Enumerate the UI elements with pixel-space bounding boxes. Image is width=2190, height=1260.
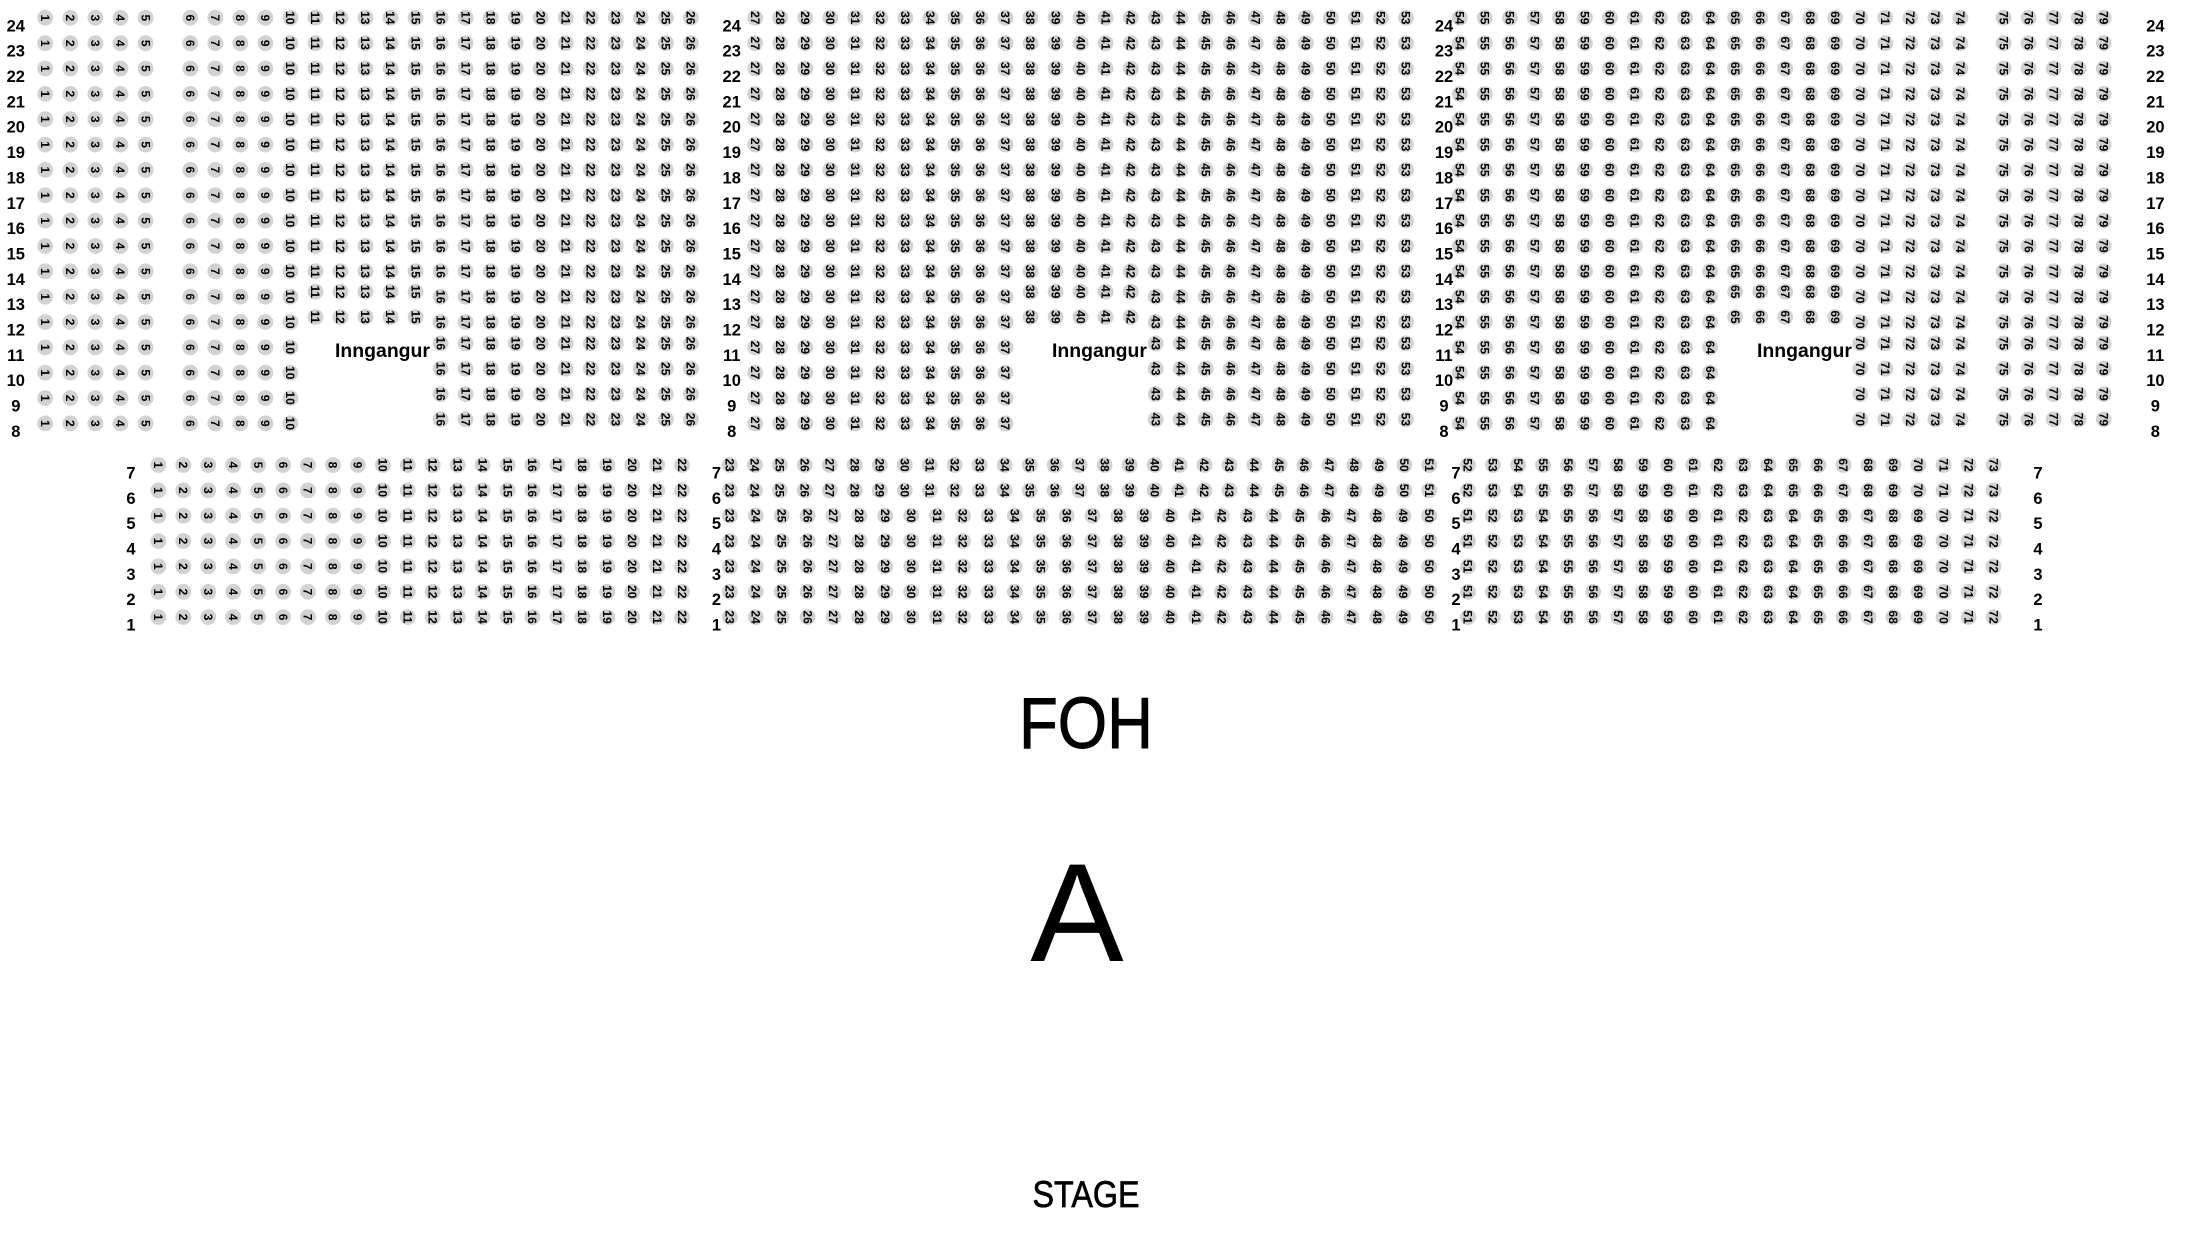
svg-text:72: 72 — [1903, 138, 1917, 152]
svg-text:39: 39 — [1048, 310, 1062, 324]
svg-text:5: 5 — [251, 487, 265, 494]
svg-text:18: 18 — [483, 113, 497, 127]
svg-text:20: 20 — [533, 37, 547, 51]
svg-text:9: 9 — [727, 398, 736, 416]
svg-text:53: 53 — [1399, 413, 1413, 427]
svg-text:60: 60 — [1603, 239, 1617, 253]
svg-text:27: 27 — [826, 560, 840, 574]
svg-text:41: 41 — [1172, 484, 1186, 498]
svg-text:3: 3 — [88, 167, 102, 174]
svg-text:38: 38 — [1111, 610, 1125, 624]
svg-text:24: 24 — [749, 585, 763, 599]
svg-text:55: 55 — [1478, 341, 1492, 355]
svg-text:74: 74 — [1953, 163, 1967, 177]
svg-text:75: 75 — [1996, 113, 2010, 127]
svg-text:71: 71 — [1961, 560, 1975, 574]
svg-text:41: 41 — [1098, 11, 1112, 25]
svg-text:3: 3 — [88, 293, 102, 300]
svg-text:66: 66 — [1811, 458, 1825, 472]
svg-text:40: 40 — [1073, 37, 1087, 51]
svg-text:33: 33 — [898, 62, 912, 76]
svg-text:5: 5 — [138, 40, 152, 47]
svg-text:45: 45 — [1198, 362, 1212, 376]
svg-text:79: 79 — [2096, 265, 2110, 279]
svg-text:42: 42 — [1197, 458, 1211, 472]
svg-text:51: 51 — [1349, 113, 1363, 127]
svg-text:66: 66 — [1811, 484, 1825, 498]
svg-text:59: 59 — [1636, 484, 1650, 498]
svg-text:56: 56 — [1503, 189, 1517, 203]
svg-text:30: 30 — [823, 87, 837, 101]
svg-text:3: 3 — [88, 420, 102, 427]
svg-text:19: 19 — [600, 585, 614, 599]
svg-text:71: 71 — [1878, 265, 1892, 279]
svg-text:69: 69 — [1911, 610, 1925, 624]
svg-text:60: 60 — [1603, 37, 1617, 51]
svg-text:63: 63 — [1678, 239, 1692, 253]
svg-text:75: 75 — [1996, 87, 2010, 101]
svg-text:74: 74 — [1953, 37, 1967, 51]
svg-text:19: 19 — [508, 37, 522, 51]
svg-text:7: 7 — [208, 192, 222, 199]
svg-text:6: 6 — [183, 319, 197, 326]
svg-text:63: 63 — [1678, 214, 1692, 228]
svg-text:3: 3 — [88, 116, 102, 123]
svg-text:35: 35 — [948, 189, 962, 203]
svg-text:48: 48 — [1370, 534, 1384, 548]
svg-text:26: 26 — [684, 189, 698, 203]
svg-text:36: 36 — [973, 214, 987, 228]
svg-text:18: 18 — [7, 169, 25, 187]
svg-text:75: 75 — [1996, 239, 2010, 253]
svg-text:27: 27 — [823, 484, 837, 498]
svg-text:51: 51 — [1349, 387, 1363, 401]
svg-text:65: 65 — [1811, 585, 1825, 599]
svg-text:29: 29 — [878, 560, 892, 574]
svg-text:73: 73 — [1928, 37, 1942, 51]
svg-text:15: 15 — [500, 484, 514, 498]
svg-text:31: 31 — [930, 610, 944, 624]
svg-text:48: 48 — [1347, 458, 1361, 472]
svg-text:18: 18 — [483, 138, 497, 152]
svg-text:25: 25 — [774, 585, 788, 599]
svg-text:51: 51 — [1349, 413, 1363, 427]
svg-text:10: 10 — [283, 189, 297, 203]
svg-text:57: 57 — [1528, 214, 1542, 228]
svg-text:4: 4 — [113, 319, 127, 326]
svg-text:57: 57 — [1611, 560, 1625, 574]
svg-text:13: 13 — [358, 138, 372, 152]
svg-text:75: 75 — [1996, 265, 2010, 279]
svg-text:46: 46 — [1297, 484, 1311, 498]
svg-text:33: 33 — [898, 113, 912, 127]
svg-text:12: 12 — [425, 534, 439, 548]
svg-text:15: 15 — [723, 246, 741, 264]
svg-text:76: 76 — [2021, 413, 2035, 427]
svg-text:32: 32 — [873, 163, 887, 177]
svg-text:74: 74 — [1953, 113, 1967, 127]
svg-text:55: 55 — [1478, 62, 1492, 76]
svg-text:40: 40 — [1073, 113, 1087, 127]
svg-text:54: 54 — [1453, 290, 1467, 304]
svg-text:28: 28 — [773, 239, 787, 253]
svg-text:48: 48 — [1274, 239, 1288, 253]
svg-text:30: 30 — [823, 189, 837, 203]
svg-text:35: 35 — [948, 163, 962, 177]
svg-text:11: 11 — [308, 62, 322, 75]
svg-text:65: 65 — [1728, 285, 1742, 299]
svg-text:76: 76 — [2021, 290, 2035, 304]
svg-text:70: 70 — [1911, 458, 1925, 472]
svg-text:34: 34 — [923, 290, 937, 304]
svg-text:12: 12 — [723, 322, 741, 340]
svg-text:52: 52 — [1374, 315, 1388, 329]
svg-text:49: 49 — [1299, 189, 1313, 203]
svg-text:40: 40 — [1073, 189, 1087, 203]
svg-text:21: 21 — [559, 239, 573, 253]
svg-text:64: 64 — [1703, 189, 1717, 203]
svg-text:41: 41 — [1189, 534, 1203, 548]
svg-text:18: 18 — [1435, 169, 1453, 187]
svg-text:19: 19 — [600, 610, 614, 624]
svg-text:7: 7 — [208, 217, 222, 224]
svg-text:76: 76 — [2021, 189, 2035, 203]
svg-text:22: 22 — [7, 68, 25, 86]
svg-text:58: 58 — [1553, 113, 1567, 127]
svg-text:55: 55 — [1478, 189, 1492, 203]
svg-text:61: 61 — [1628, 239, 1642, 253]
svg-text:44: 44 — [1267, 585, 1281, 599]
svg-text:11: 11 — [308, 88, 322, 101]
svg-text:75: 75 — [1996, 37, 2010, 51]
svg-text:66: 66 — [1753, 265, 1767, 279]
svg-text:28: 28 — [852, 560, 866, 574]
svg-text:5: 5 — [138, 268, 152, 275]
svg-text:3: 3 — [201, 563, 215, 570]
svg-text:8: 8 — [326, 462, 340, 469]
svg-text:78: 78 — [2071, 163, 2085, 177]
svg-text:8: 8 — [233, 268, 247, 275]
svg-text:62: 62 — [1653, 87, 1667, 101]
svg-text:61: 61 — [1628, 417, 1642, 431]
svg-text:19: 19 — [7, 144, 25, 162]
svg-text:68: 68 — [1803, 239, 1817, 253]
svg-text:74: 74 — [1953, 265, 1967, 279]
svg-text:30: 30 — [823, 37, 837, 51]
svg-text:71: 71 — [1878, 387, 1892, 401]
svg-text:50: 50 — [1422, 610, 1436, 624]
svg-text:47: 47 — [1344, 610, 1358, 624]
svg-text:58: 58 — [1611, 484, 1625, 498]
svg-text:19: 19 — [508, 138, 522, 152]
svg-text:40: 40 — [1163, 560, 1177, 574]
svg-text:4: 4 — [1451, 541, 1461, 559]
svg-text:24: 24 — [749, 534, 763, 548]
svg-text:31: 31 — [848, 417, 862, 431]
svg-text:21: 21 — [650, 560, 664, 574]
svg-text:16: 16 — [433, 315, 447, 329]
svg-text:27: 27 — [748, 113, 762, 127]
svg-text:65: 65 — [1728, 37, 1742, 51]
svg-text:27: 27 — [748, 417, 762, 431]
svg-text:42: 42 — [1123, 189, 1137, 203]
svg-text:1: 1 — [151, 462, 165, 469]
svg-text:18: 18 — [483, 163, 497, 177]
svg-text:9: 9 — [351, 512, 365, 519]
svg-text:17: 17 — [458, 62, 472, 76]
svg-text:66: 66 — [1836, 509, 1850, 523]
svg-text:32: 32 — [956, 509, 970, 523]
svg-text:28: 28 — [773, 138, 787, 152]
svg-text:67: 67 — [1778, 138, 1792, 152]
svg-text:61: 61 — [1628, 341, 1642, 355]
svg-text:23: 23 — [609, 189, 623, 203]
svg-text:31: 31 — [848, 290, 862, 304]
svg-text:18: 18 — [483, 37, 497, 51]
svg-text:35: 35 — [948, 265, 962, 279]
svg-text:23: 23 — [609, 214, 623, 228]
svg-text:44: 44 — [1267, 509, 1281, 523]
svg-text:68: 68 — [1803, 37, 1817, 51]
svg-text:78: 78 — [2071, 337, 2085, 351]
svg-text:31: 31 — [848, 11, 862, 25]
svg-text:16: 16 — [525, 484, 539, 498]
svg-text:60: 60 — [1603, 290, 1617, 304]
svg-text:70: 70 — [1936, 610, 1950, 624]
svg-text:7: 7 — [208, 319, 222, 326]
svg-text:33: 33 — [898, 290, 912, 304]
svg-text:65: 65 — [1811, 610, 1825, 624]
svg-text:28: 28 — [773, 391, 787, 405]
svg-text:12: 12 — [425, 484, 439, 498]
svg-text:70: 70 — [1853, 337, 1867, 351]
svg-text:30: 30 — [904, 534, 918, 548]
svg-text:69: 69 — [1886, 458, 1900, 472]
svg-text:13: 13 — [358, 113, 372, 127]
svg-text:45: 45 — [1198, 315, 1212, 329]
svg-text:53: 53 — [1399, 163, 1413, 177]
svg-text:25: 25 — [774, 509, 788, 523]
svg-text:35: 35 — [948, 214, 962, 228]
svg-text:60: 60 — [1603, 366, 1617, 380]
svg-text:76: 76 — [2021, 11, 2035, 25]
svg-text:54: 54 — [1453, 163, 1467, 177]
svg-text:28: 28 — [773, 417, 787, 431]
svg-text:22: 22 — [584, 37, 598, 51]
svg-text:44: 44 — [1173, 189, 1187, 203]
svg-text:21: 21 — [559, 87, 573, 101]
svg-text:33: 33 — [898, 417, 912, 431]
svg-text:11: 11 — [2147, 347, 2164, 365]
svg-text:9: 9 — [11, 398, 20, 416]
svg-text:32: 32 — [873, 37, 887, 51]
svg-text:61: 61 — [1711, 560, 1725, 574]
svg-text:9: 9 — [351, 538, 365, 545]
svg-text:13: 13 — [358, 310, 372, 324]
svg-text:24: 24 — [749, 509, 763, 523]
svg-text:35: 35 — [948, 138, 962, 152]
svg-text:55: 55 — [1478, 391, 1492, 405]
svg-text:4: 4 — [113, 344, 127, 351]
svg-text:49: 49 — [1396, 534, 1410, 548]
svg-text:68: 68 — [1861, 458, 1875, 472]
svg-text:38: 38 — [1023, 214, 1037, 228]
svg-text:67: 67 — [1778, 285, 1792, 299]
svg-text:69: 69 — [1828, 285, 1842, 299]
svg-text:73: 73 — [1928, 337, 1942, 351]
svg-text:38: 38 — [1111, 534, 1125, 548]
svg-text:24: 24 — [634, 214, 648, 228]
svg-text:20: 20 — [625, 610, 639, 624]
svg-text:26: 26 — [684, 362, 698, 376]
svg-text:64: 64 — [1703, 87, 1717, 101]
svg-text:58: 58 — [1553, 265, 1567, 279]
svg-text:43: 43 — [1241, 509, 1255, 523]
svg-text:42: 42 — [1123, 87, 1137, 101]
svg-text:18: 18 — [2146, 169, 2164, 187]
svg-text:9: 9 — [258, 344, 272, 351]
svg-text:32: 32 — [956, 560, 970, 574]
svg-text:14: 14 — [383, 214, 397, 228]
svg-text:35: 35 — [948, 87, 962, 101]
svg-text:13: 13 — [358, 239, 372, 253]
svg-text:39: 39 — [1048, 285, 1062, 299]
svg-text:20: 20 — [533, 239, 547, 253]
svg-text:35: 35 — [948, 391, 962, 405]
svg-text:32: 32 — [873, 341, 887, 355]
svg-text:16: 16 — [1435, 220, 1453, 238]
svg-text:59: 59 — [1578, 366, 1592, 380]
svg-text:31: 31 — [848, 239, 862, 253]
svg-text:60: 60 — [1603, 113, 1617, 127]
svg-text:36: 36 — [973, 366, 987, 380]
svg-text:39: 39 — [1048, 189, 1062, 203]
svg-text:59: 59 — [1661, 509, 1675, 523]
svg-text:12: 12 — [333, 163, 347, 177]
svg-text:14: 14 — [475, 560, 489, 574]
svg-text:53: 53 — [1486, 484, 1500, 498]
svg-text:6: 6 — [183, 369, 197, 376]
svg-text:21: 21 — [559, 265, 573, 279]
svg-text:64: 64 — [1703, 11, 1717, 25]
svg-text:12: 12 — [333, 37, 347, 51]
svg-text:60: 60 — [1603, 11, 1617, 25]
svg-text:79: 79 — [2096, 413, 2110, 427]
svg-text:4: 4 — [113, 243, 127, 250]
svg-text:FOH: FOH — [1019, 684, 1153, 764]
svg-text:73: 73 — [1928, 265, 1942, 279]
svg-text:50: 50 — [1324, 337, 1338, 351]
svg-text:37: 37 — [998, 62, 1012, 76]
svg-text:72: 72 — [1903, 387, 1917, 401]
svg-text:63: 63 — [1678, 11, 1692, 25]
svg-text:14: 14 — [475, 458, 489, 472]
svg-text:5: 5 — [138, 369, 152, 376]
svg-text:4: 4 — [226, 512, 240, 519]
svg-text:11: 11 — [401, 484, 415, 497]
svg-text:15: 15 — [500, 560, 514, 574]
svg-text:24: 24 — [634, 62, 648, 76]
svg-text:28: 28 — [773, 113, 787, 127]
svg-text:48: 48 — [1274, 265, 1288, 279]
svg-text:39: 39 — [1048, 163, 1062, 177]
svg-text:49: 49 — [1299, 113, 1313, 127]
svg-text:47: 47 — [1249, 113, 1263, 127]
svg-text:54: 54 — [1536, 560, 1550, 574]
svg-text:50: 50 — [1324, 37, 1338, 51]
svg-text:55: 55 — [1478, 214, 1492, 228]
svg-text:12: 12 — [333, 310, 347, 324]
svg-text:46: 46 — [1318, 585, 1332, 599]
svg-text:49: 49 — [1299, 337, 1313, 351]
svg-text:33: 33 — [898, 37, 912, 51]
svg-text:61: 61 — [1628, 391, 1642, 405]
svg-text:4: 4 — [113, 293, 127, 300]
svg-text:70: 70 — [1853, 290, 1867, 304]
svg-text:37: 37 — [998, 341, 1012, 355]
svg-text:69: 69 — [1828, 310, 1842, 324]
svg-text:22: 22 — [1435, 68, 1453, 86]
svg-text:Inngangur: Inngangur — [1757, 341, 1853, 362]
svg-text:50: 50 — [1324, 290, 1338, 304]
svg-text:64: 64 — [1786, 509, 1800, 523]
svg-text:26: 26 — [800, 560, 814, 574]
svg-text:72: 72 — [1903, 265, 1917, 279]
svg-text:9: 9 — [258, 91, 272, 98]
svg-text:7: 7 — [2033, 465, 2042, 483]
svg-text:57: 57 — [1611, 534, 1625, 548]
svg-text:11: 11 — [308, 113, 322, 126]
svg-text:34: 34 — [923, 315, 937, 329]
svg-text:59: 59 — [1578, 214, 1592, 228]
svg-text:52: 52 — [1374, 113, 1388, 127]
svg-text:46: 46 — [1224, 239, 1238, 253]
svg-text:24: 24 — [634, 113, 648, 127]
svg-text:75: 75 — [1996, 290, 2010, 304]
svg-text:32: 32 — [873, 290, 887, 304]
svg-text:53: 53 — [1399, 265, 1413, 279]
svg-text:8: 8 — [233, 192, 247, 199]
svg-text:41: 41 — [1098, 310, 1112, 324]
svg-text:43: 43 — [1148, 362, 1162, 376]
svg-text:26: 26 — [684, 290, 698, 304]
svg-text:19: 19 — [508, 62, 522, 76]
svg-text:60: 60 — [1603, 315, 1617, 329]
svg-text:47: 47 — [1249, 163, 1263, 177]
svg-text:1: 1 — [38, 268, 52, 275]
svg-text:23: 23 — [609, 163, 623, 177]
svg-text:2: 2 — [1451, 591, 1460, 609]
svg-text:2: 2 — [63, 192, 77, 199]
svg-text:28: 28 — [773, 315, 787, 329]
svg-text:15: 15 — [408, 310, 422, 324]
svg-text:46: 46 — [1224, 413, 1238, 427]
svg-text:68: 68 — [1803, 265, 1817, 279]
svg-text:21: 21 — [650, 585, 664, 599]
svg-text:10: 10 — [283, 366, 297, 380]
svg-text:58: 58 — [1553, 189, 1567, 203]
svg-text:6: 6 — [183, 141, 197, 148]
svg-text:18: 18 — [483, 11, 497, 25]
svg-text:6: 6 — [183, 40, 197, 47]
svg-text:51: 51 — [1461, 560, 1475, 574]
svg-text:17: 17 — [458, 315, 472, 329]
svg-text:56: 56 — [1561, 458, 1575, 472]
svg-text:52: 52 — [1374, 290, 1388, 304]
svg-text:16: 16 — [7, 220, 25, 238]
svg-text:43: 43 — [1241, 610, 1255, 624]
svg-text:52: 52 — [1486, 610, 1500, 624]
